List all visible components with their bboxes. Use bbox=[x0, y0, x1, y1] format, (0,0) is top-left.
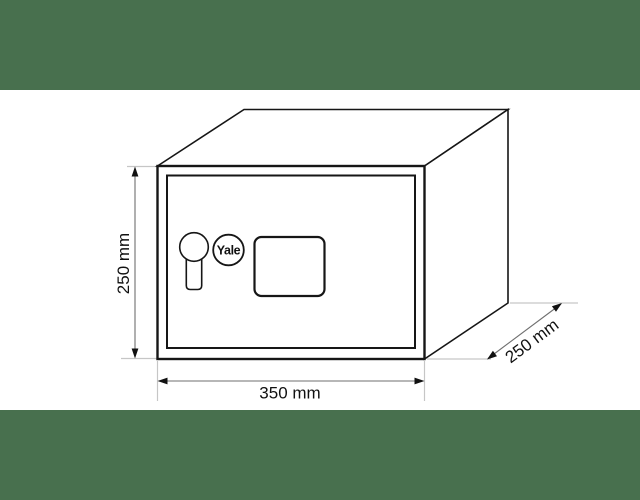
arrow-depth-far-icon bbox=[552, 303, 562, 312]
safe-body bbox=[158, 110, 509, 360]
arrow-up-icon bbox=[132, 167, 139, 177]
safe-drawing-canvas: Yale 250 mm 350 mm 250 mm bbox=[0, 0, 640, 500]
safe-dimension-figure: Yale 250 mm 350 mm 250 mm bbox=[0, 0, 640, 500]
arrow-right-icon bbox=[415, 378, 425, 385]
arrow-depth-near-icon bbox=[487, 351, 497, 360]
keyhole-icon bbox=[180, 233, 209, 262]
arrow-left-icon bbox=[158, 378, 168, 385]
width-dimension-label: 350 mm bbox=[259, 384, 320, 403]
height-dimension-label: 250 mm bbox=[114, 233, 133, 294]
yale-logo-text: Yale bbox=[217, 244, 241, 258]
keypad-panel bbox=[255, 237, 325, 296]
arrow-down-icon bbox=[132, 349, 139, 359]
